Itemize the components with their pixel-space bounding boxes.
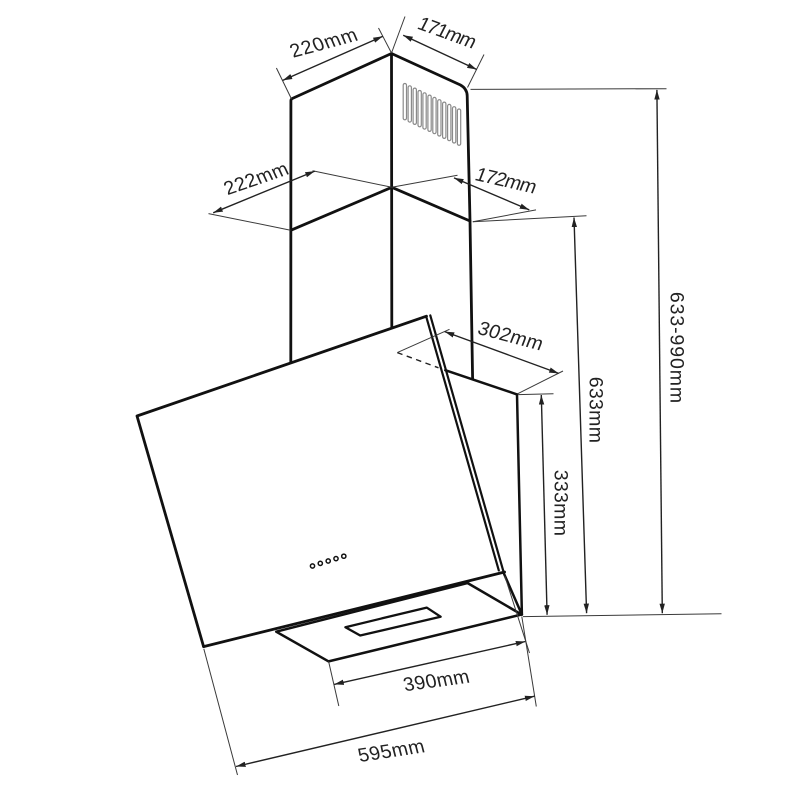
- svg-text:333mm: 333mm: [550, 470, 572, 537]
- svg-text:633-990mm: 633-990mm: [666, 292, 688, 404]
- svg-text:633mm: 633mm: [585, 377, 607, 444]
